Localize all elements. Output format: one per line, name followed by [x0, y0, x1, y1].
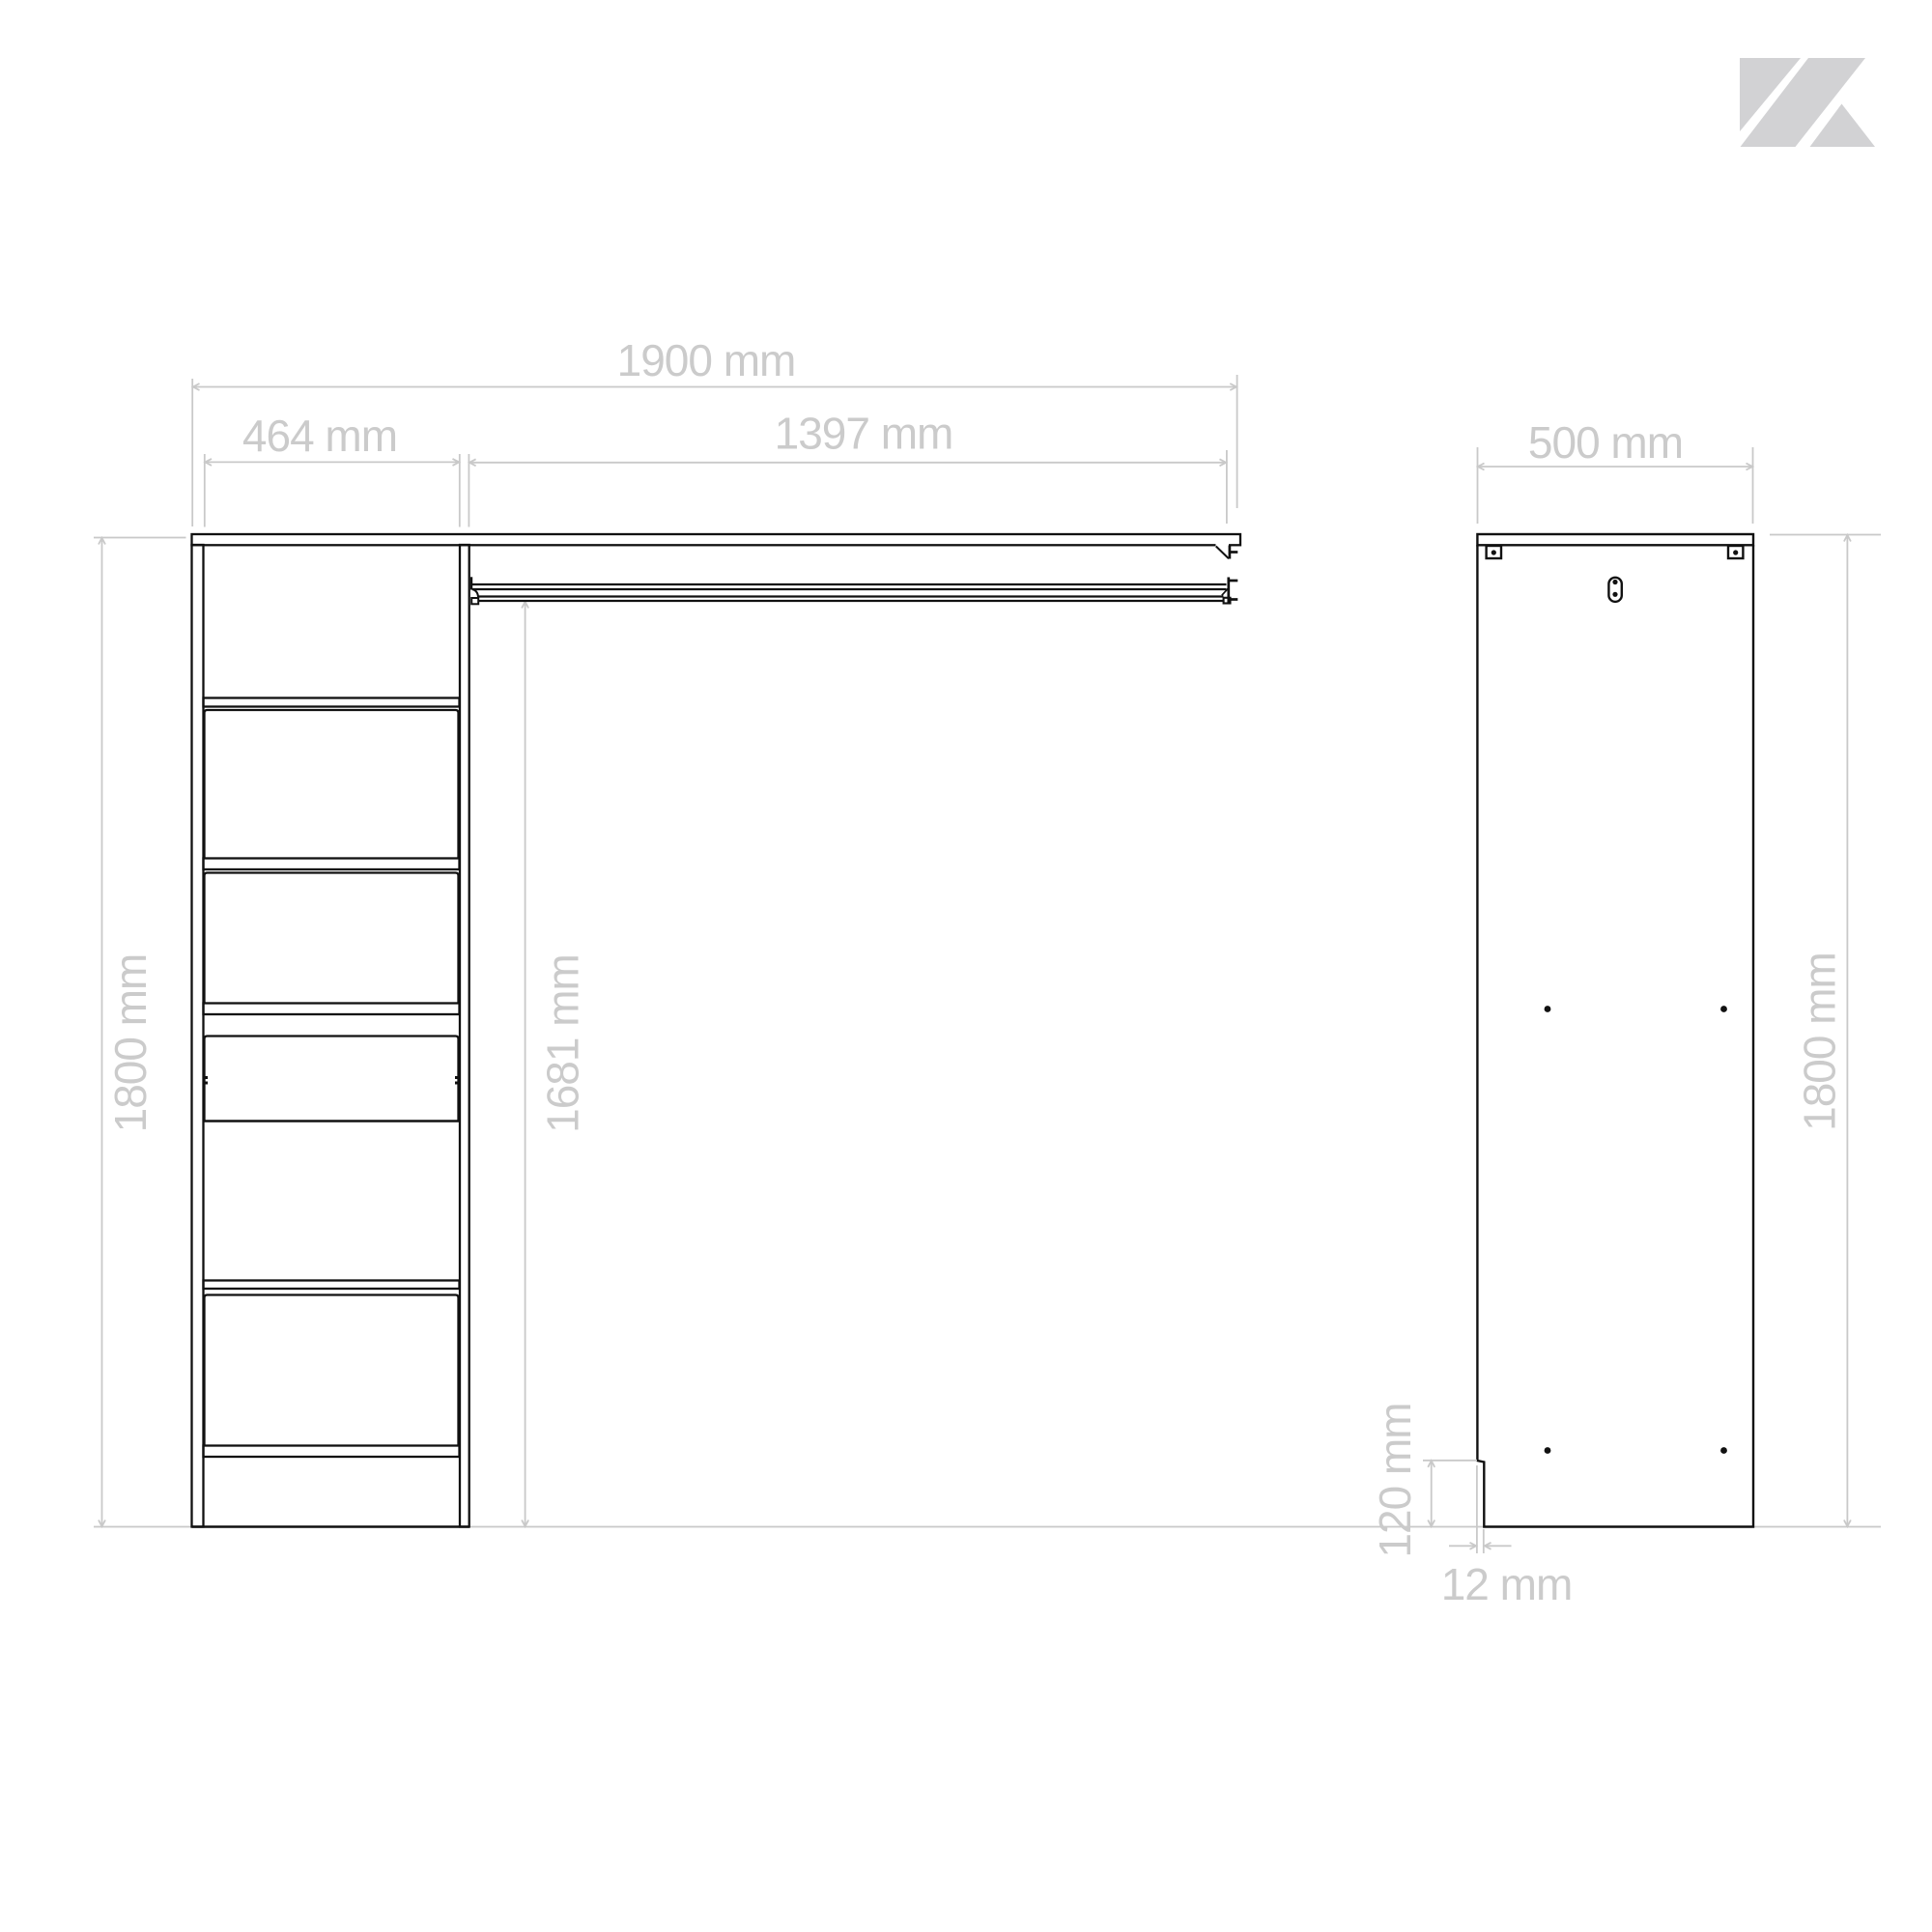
svg-text:1681 mm: 1681 mm: [538, 954, 588, 1133]
svg-text:1900 mm: 1900 mm: [617, 335, 796, 385]
svg-text:464 mm: 464 mm: [242, 411, 397, 461]
svg-text:12 mm: 12 mm: [1441, 1559, 1573, 1609]
svg-text:120 mm: 120 mm: [1370, 1403, 1420, 1557]
svg-text:1397 mm: 1397 mm: [775, 409, 953, 459]
svg-text:1800 mm: 1800 mm: [1795, 952, 1845, 1131]
svg-text:500 mm: 500 mm: [1528, 417, 1683, 468]
svg-text:1800 mm: 1800 mm: [105, 954, 156, 1133]
